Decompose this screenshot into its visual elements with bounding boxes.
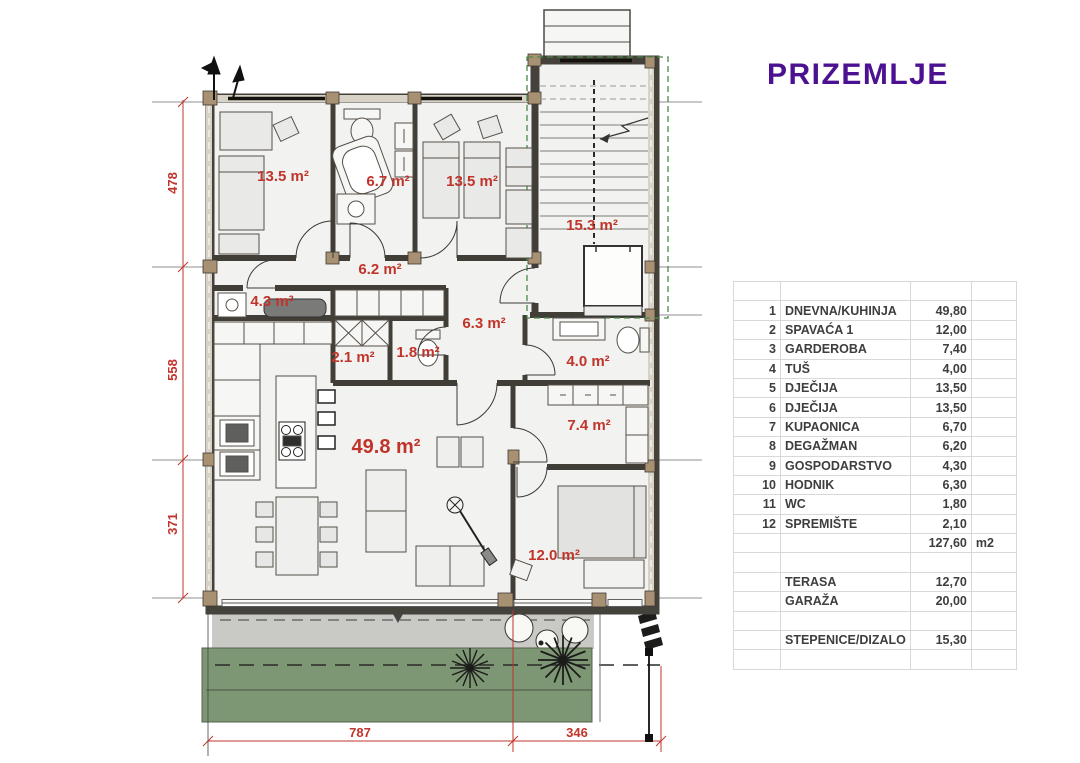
table-row: 4TUŠ4,00 bbox=[734, 359, 1017, 378]
windows bbox=[222, 600, 642, 607]
cell-unit bbox=[971, 475, 1016, 494]
cell-unit bbox=[971, 320, 1016, 339]
room-label-stepenice: 15.3 m² bbox=[566, 217, 618, 234]
cell-unit bbox=[971, 631, 1016, 650]
cell-num bbox=[734, 592, 781, 611]
table-row: 9GOSPODARSTVO4,30 bbox=[734, 456, 1017, 475]
cell-value: 4,00 bbox=[910, 359, 971, 378]
room-label-kupaonica: 6.7 m² bbox=[366, 173, 409, 190]
room-label-wc: 1.8 m² bbox=[396, 344, 439, 361]
cell-name bbox=[781, 282, 911, 301]
cell-num: 3 bbox=[734, 340, 781, 359]
area-table-body: 1DNEVNA/KUHINJA49,802SPAVAĆA 112,003GARD… bbox=[734, 282, 1017, 670]
table-row: 5DJEČIJA13,50 bbox=[734, 378, 1017, 397]
table-row: STEPENICE/DIZALO15,30 bbox=[734, 631, 1017, 650]
room-label-djecija-1: 13.5 m² bbox=[257, 168, 309, 185]
cell-value: 13,50 bbox=[910, 378, 971, 397]
cell-value: 12,00 bbox=[910, 320, 971, 339]
cell-unit bbox=[971, 359, 1016, 378]
cell-num bbox=[734, 534, 781, 553]
cell-num bbox=[734, 650, 781, 669]
cell-value: 6,30 bbox=[910, 475, 971, 494]
dim-left-558: 558 bbox=[165, 359, 180, 381]
cell-name: SPREMIŠTE bbox=[781, 514, 911, 533]
cell-value: 13,50 bbox=[910, 398, 971, 417]
cell-unit bbox=[971, 495, 1016, 514]
table-row bbox=[734, 553, 1017, 572]
cell-num: 1 bbox=[734, 301, 781, 320]
cell-name: DJEČIJA bbox=[781, 378, 911, 397]
cell-unit bbox=[971, 572, 1016, 591]
table-row: 6DJEČIJA13,50 bbox=[734, 398, 1017, 417]
cell-name: DJEČIJA bbox=[781, 398, 911, 417]
cell-value: 6,70 bbox=[910, 417, 971, 436]
cell-name: GARAŽA bbox=[781, 592, 911, 611]
dim-bottom-787: 787 bbox=[349, 725, 371, 740]
cell-unit: m2 bbox=[971, 534, 1016, 553]
cell-name bbox=[781, 553, 911, 572]
cell-unit bbox=[971, 301, 1016, 320]
table-row: 1DNEVNA/KUHINJA49,80 bbox=[734, 301, 1017, 320]
furniture-corridor-wardrobe bbox=[335, 290, 444, 316]
cell-value: 4,30 bbox=[910, 456, 971, 475]
room-label-gospodarstvo: 4.3 m² bbox=[250, 293, 293, 310]
cell-name: KUPAONICA bbox=[781, 417, 911, 436]
cell-num bbox=[734, 282, 781, 301]
cell-value bbox=[910, 553, 971, 572]
table-row bbox=[734, 282, 1017, 301]
floor-plan-svg: 478 558 371 787 346 13.5 m² 6.7 m² 13.5 … bbox=[0, 0, 720, 763]
cell-num: 10 bbox=[734, 475, 781, 494]
cell-num: 6 bbox=[734, 398, 781, 417]
cell-num: 9 bbox=[734, 456, 781, 475]
furniture-spremiste bbox=[335, 320, 389, 346]
cell-name: HODNIK bbox=[781, 475, 911, 494]
cell-value: 6,20 bbox=[910, 437, 971, 456]
cell-unit bbox=[971, 398, 1016, 417]
cell-num: 5 bbox=[734, 378, 781, 397]
cell-name: STEPENICE/DIZALO bbox=[781, 631, 911, 650]
cell-num: 2 bbox=[734, 320, 781, 339]
cell-name: SPAVAĆA 1 bbox=[781, 320, 911, 339]
cell-unit bbox=[971, 514, 1016, 533]
cell-num bbox=[734, 553, 781, 572]
table-row: 127,60m2 bbox=[734, 534, 1017, 553]
cell-name: TERASA bbox=[781, 572, 911, 591]
cell-num: 12 bbox=[734, 514, 781, 533]
table-row: GARAŽA20,00 bbox=[734, 592, 1017, 611]
room-label-garderoba: 7.4 m² bbox=[567, 417, 610, 434]
table-row: TERASA12,70 bbox=[734, 572, 1017, 591]
cell-unit bbox=[971, 592, 1016, 611]
room-label-tus: 4.0 m² bbox=[566, 353, 609, 370]
cell-value: 127,60 bbox=[910, 534, 971, 553]
cell-num bbox=[734, 631, 781, 650]
cell-unit bbox=[971, 553, 1016, 572]
cell-value: 15,30 bbox=[910, 631, 971, 650]
cell-unit bbox=[971, 650, 1016, 669]
cell-name bbox=[781, 611, 911, 630]
elevator bbox=[584, 246, 642, 316]
cell-name: WC bbox=[781, 495, 911, 514]
table-row: 8DEGAŽMAN6,20 bbox=[734, 437, 1017, 456]
room-label-spavaca: 12.0 m² bbox=[528, 547, 580, 564]
area-table: 1DNEVNA/KUHINJA49,802SPAVAĆA 112,003GARD… bbox=[733, 281, 1017, 670]
cell-name: DNEVNA/KUHINJA bbox=[781, 301, 911, 320]
cell-value bbox=[910, 611, 971, 630]
cell-value bbox=[910, 650, 971, 669]
exterior-steps bbox=[638, 611, 663, 650]
table-row: 12SPREMIŠTE2,10 bbox=[734, 514, 1017, 533]
table-row bbox=[734, 650, 1017, 669]
cell-unit bbox=[971, 378, 1016, 397]
cell-unit bbox=[971, 417, 1016, 436]
table-row: 11WC1,80 bbox=[734, 495, 1017, 514]
room-label-spremiste: 2.1 m² bbox=[331, 349, 374, 366]
cell-name: DEGAŽMAN bbox=[781, 437, 911, 456]
room-label-degazman: 6.2 m² bbox=[358, 261, 401, 278]
cell-unit bbox=[971, 340, 1016, 359]
cell-num bbox=[734, 572, 781, 591]
cell-value: 7,40 bbox=[910, 340, 971, 359]
cell-name: GOSPODARSTVO bbox=[781, 456, 911, 475]
cell-num: 8 bbox=[734, 437, 781, 456]
cell-value bbox=[910, 282, 971, 301]
cell-name bbox=[781, 650, 911, 669]
room-label-hodnik: 6.3 m² bbox=[462, 315, 505, 332]
room-label-djecija-2: 13.5 m² bbox=[446, 173, 498, 190]
table-row: 2SPAVAĆA 112,00 bbox=[734, 320, 1017, 339]
table-row bbox=[734, 611, 1017, 630]
cell-unit bbox=[971, 282, 1016, 301]
furniture-dining bbox=[256, 497, 337, 575]
cell-name bbox=[781, 534, 911, 553]
cell-value: 1,80 bbox=[910, 495, 971, 514]
cell-value: 12,70 bbox=[910, 572, 971, 591]
cell-num: 4 bbox=[734, 359, 781, 378]
cell-num bbox=[734, 611, 781, 630]
dim-left-478: 478 bbox=[165, 172, 180, 194]
cell-unit bbox=[971, 611, 1016, 630]
cell-name: GARDEROBA bbox=[781, 340, 911, 359]
cell-value: 2,10 bbox=[910, 514, 971, 533]
table-row: 3GARDEROBA7,40 bbox=[734, 340, 1017, 359]
cell-unit bbox=[971, 456, 1016, 475]
upper-stair-flight bbox=[544, 10, 630, 60]
cell-name: TUŠ bbox=[781, 359, 911, 378]
dim-bottom-346: 346 bbox=[566, 725, 588, 740]
cell-value: 20,00 bbox=[910, 592, 971, 611]
cell-unit bbox=[971, 437, 1016, 456]
cell-value: 49,80 bbox=[910, 301, 971, 320]
table-row: 7KUPAONICA6,70 bbox=[734, 417, 1017, 436]
cell-num: 11 bbox=[734, 495, 781, 514]
dim-left-371: 371 bbox=[165, 513, 180, 535]
room-label-dnevna: 49.8 m² bbox=[352, 436, 421, 458]
cell-num: 7 bbox=[734, 417, 781, 436]
page-title: PRIZEMLJE bbox=[767, 58, 949, 92]
table-row: 10HODNIK6,30 bbox=[734, 475, 1017, 494]
floor-plan-page: 478 558 371 787 346 13.5 m² 6.7 m² 13.5 … bbox=[0, 0, 1080, 763]
